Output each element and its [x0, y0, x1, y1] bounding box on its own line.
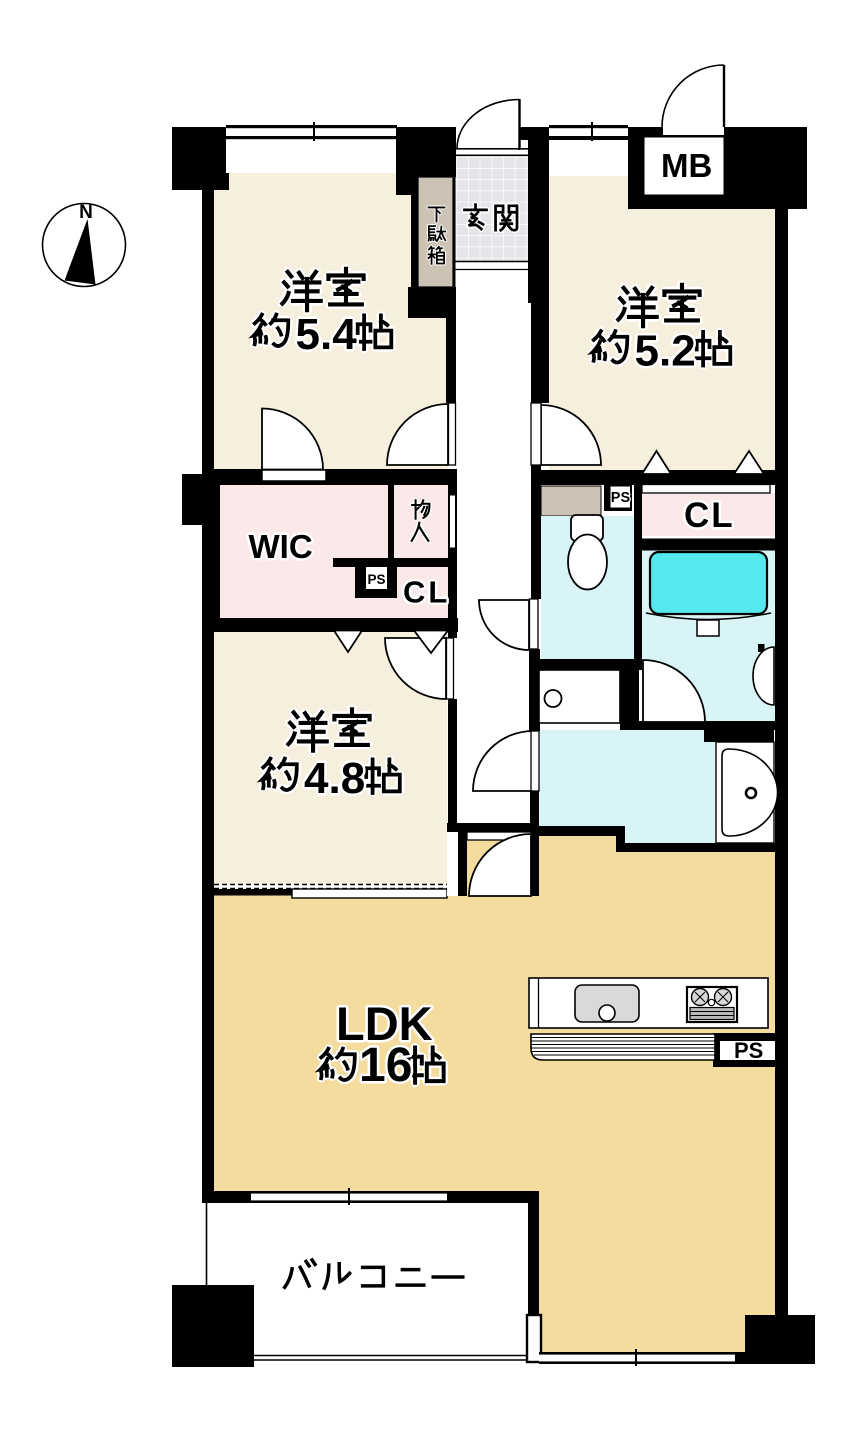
svg-text:MB: MB [661, 147, 712, 184]
svg-text:WIC: WIC [249, 528, 313, 565]
svg-text:5.2: 5.2 [635, 327, 696, 376]
svg-text:PS: PS [734, 1038, 763, 1063]
svg-text:16: 16 [359, 1039, 412, 1092]
svg-text:PS: PS [368, 572, 386, 587]
svg-text:N: N [79, 202, 93, 223]
svg-text:CL: CL [684, 496, 735, 535]
svg-text:CL: CL [403, 575, 450, 610]
svg-text:PS: PS [611, 490, 631, 506]
svg-text:5.4: 5.4 [296, 310, 358, 359]
svg-text:4.8: 4.8 [304, 754, 365, 803]
